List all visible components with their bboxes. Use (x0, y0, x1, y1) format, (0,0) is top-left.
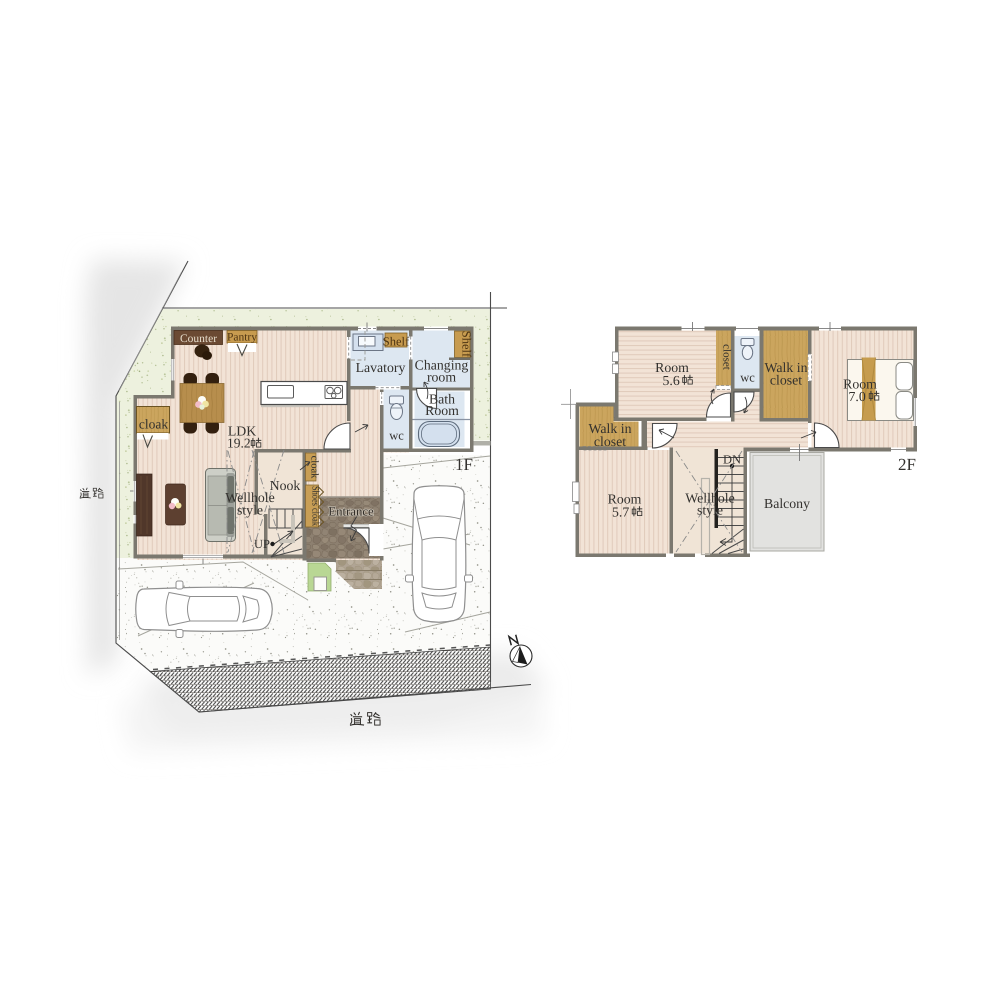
svg-text:wc: wc (740, 371, 755, 385)
svg-text:Shoes cloak: Shoes cloak (310, 486, 321, 526)
svg-text:closet: closet (721, 344, 733, 370)
svg-text:1F: 1F (455, 455, 473, 474)
svg-text:closet: closet (770, 373, 802, 388)
svg-text:room: room (427, 370, 456, 385)
svg-text:Balcony: Balcony (764, 496, 810, 511)
svg-text:5.6: 5.6 (663, 373, 680, 388)
svg-text:style: style (237, 503, 263, 518)
svg-text:cloak: cloak (139, 417, 168, 432)
svg-text:cloak: cloak (309, 456, 320, 479)
svg-text:Pantry: Pantry (227, 332, 257, 344)
svg-text:wc: wc (389, 429, 404, 443)
svg-text:Lavatory: Lavatory (356, 360, 406, 375)
svg-text:Shelf: Shelf (460, 331, 474, 358)
svg-text:2F: 2F (898, 455, 916, 474)
svg-text:5.7: 5.7 (612, 505, 629, 520)
svg-text:closet: closet (594, 434, 626, 449)
svg-text:UP: UP (254, 537, 270, 551)
svg-text:7.0: 7.0 (849, 389, 866, 404)
svg-text:Counter: Counter (180, 333, 217, 345)
svg-text:Room: Room (425, 403, 459, 418)
svg-text:Shelf: Shelf (383, 335, 410, 349)
svg-text:Entrance: Entrance (328, 505, 374, 519)
svg-text:19.2: 19.2 (227, 436, 251, 451)
svg-text:style: style (697, 503, 723, 518)
svg-text:DN: DN (723, 453, 741, 467)
